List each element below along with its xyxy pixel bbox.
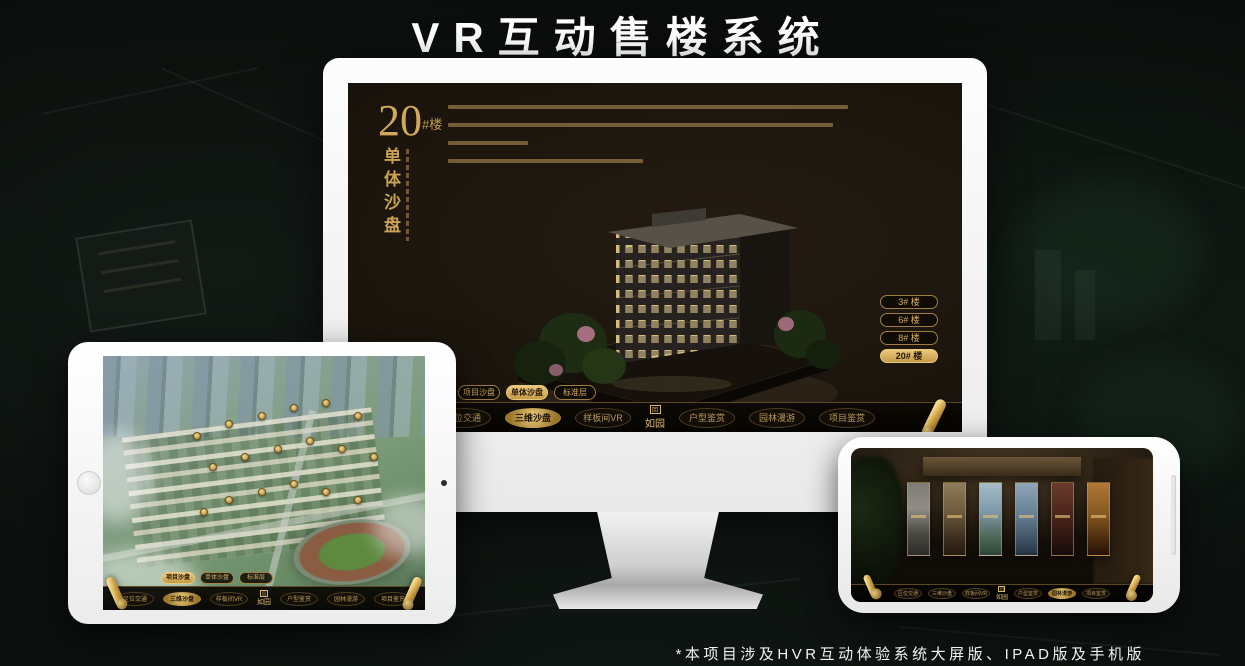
headline-english-caption	[406, 149, 409, 241]
scene-card[interactable]	[943, 482, 966, 556]
nav-item-project-gallery[interactable]: 项目鉴赏	[819, 408, 875, 428]
page-title: VR互动售楼系统	[0, 4, 1245, 65]
scene-card[interactable]	[1087, 482, 1110, 556]
brand-logo: 回 如园	[996, 586, 1008, 601]
tab-project-sandbox[interactable]: 项目沙盘	[458, 385, 500, 400]
phone-navbar: 区位交通 三维沙盘 样板间VR 回 如园 户型鉴赏 园林漫游 项目鉴赏	[851, 584, 1153, 602]
building-button-8[interactable]: 8# 楼	[880, 331, 938, 345]
tablet-screen: 项目沙盘 单体沙盘 标准层 区位交通 三维沙盘 样板间VR 回 如园 户型鉴赏 …	[103, 356, 425, 610]
tablet-camera-icon	[441, 480, 447, 486]
scene-card[interactable]	[907, 482, 930, 556]
building-button-3[interactable]: 3# 楼	[880, 295, 938, 309]
nav-item-garden-tour[interactable]: 园林漫游	[1048, 588, 1076, 599]
brand-logo-text: 如园	[257, 597, 271, 607]
interior-foliage	[851, 456, 903, 586]
brand-logo: 回 如园	[257, 590, 271, 607]
nav-item-floorplans[interactable]: 户型鉴赏	[280, 592, 318, 606]
scene-card[interactable]	[1051, 482, 1074, 556]
nav-item-3d-sandbox[interactable]: 三维沙盘	[505, 408, 561, 428]
nav-item-garden-tour[interactable]: 园林漫游	[749, 408, 805, 428]
background-building-silhouette	[1075, 270, 1095, 340]
tablet-home-button[interactable]	[77, 471, 101, 495]
nav-item-garden-tour[interactable]: 园林漫游	[327, 592, 365, 606]
headline-suffix: #楼	[422, 114, 442, 133]
phone-screen: 区位交通 三维沙盘 样板间VR 回 如园 户型鉴赏 园林漫游 项目鉴赏	[851, 448, 1153, 602]
interior-ceiling-beam	[923, 457, 1080, 475]
nav-item-showroom-vr[interactable]: 样板间VR	[575, 408, 631, 428]
brand-logo: 回 如园	[645, 405, 665, 430]
tab-single-sandbox[interactable]: 单体沙盘	[200, 572, 234, 584]
tablet-subtabs: 项目沙盘 单体沙盘 标准层	[161, 572, 273, 584]
building-button-6[interactable]: 6# 楼	[880, 313, 938, 327]
headline-subtitle: 单体沙盘	[378, 147, 403, 257]
building-button-20[interactable]: 20# 楼	[880, 349, 938, 363]
brand-emblem-icon: 回	[260, 590, 268, 597]
nav-item-location[interactable]: 区位交通	[894, 588, 922, 599]
brand-logo-text: 如园	[645, 415, 665, 430]
background-building-silhouette	[1035, 250, 1061, 340]
headline-number: 20	[378, 99, 422, 143]
tab-project-sandbox[interactable]: 项目沙盘	[161, 572, 195, 584]
nav-item-project-gallery[interactable]: 项目鉴赏	[1082, 588, 1110, 599]
tablet-device: 项目沙盘 单体沙盘 标准层 区位交通 三维沙盘 样板间VR 回 如园 户型鉴赏 …	[68, 342, 456, 624]
building-selector: 3# 楼 6# 楼 8# 楼 20# 楼	[880, 295, 938, 363]
brand-logo-text: 如园	[996, 592, 1008, 601]
brand-emblem-icon: 回	[650, 405, 661, 414]
nav-item-floorplans[interactable]: 户型鉴赏	[1014, 588, 1042, 599]
tab-single-sandbox[interactable]: 单体沙盘	[506, 385, 548, 400]
sandbox-subtabs: 项目沙盘 单体沙盘 标准层	[458, 385, 596, 400]
nav-item-showroom-vr[interactable]: 样板间VR	[962, 588, 990, 599]
tab-standard-floor[interactable]: 标准层	[554, 385, 596, 400]
tab-standard-floor[interactable]: 标准层	[239, 572, 273, 584]
nav-item-3d-sandbox[interactable]: 三维沙盘	[163, 592, 201, 606]
phone-side-bezel	[1171, 475, 1176, 555]
nav-item-3d-sandbox[interactable]: 三维沙盘	[928, 588, 956, 599]
nav-item-showroom-vr[interactable]: 样板间VR	[210, 592, 248, 606]
nav-item-floorplans[interactable]: 户型鉴赏	[679, 408, 735, 428]
phone-device: 区位交通 三维沙盘 样板间VR 回 如园 户型鉴赏 园林漫游 项目鉴赏	[838, 437, 1180, 613]
scene-card[interactable]	[1015, 482, 1038, 556]
tablet-navbar: 区位交通 三维沙盘 样板间VR 回 如园 户型鉴赏 园林漫游 项目鉴赏	[103, 586, 425, 610]
tablet-bottom-bar: 项目沙盘 单体沙盘 标准层 区位交通 三维沙盘 样板间VR 回 如园 户型鉴赏 …	[103, 566, 425, 610]
scene-card-gallery	[907, 482, 1110, 556]
background-plaque	[75, 219, 207, 332]
scene-card[interactable]	[979, 482, 1002, 556]
screen-headline: 20#楼 单体沙盘	[378, 99, 442, 257]
footnote-text: *本项目涉及HVR互动体验系统大屏版、IPAD版及手机版	[676, 643, 1145, 664]
